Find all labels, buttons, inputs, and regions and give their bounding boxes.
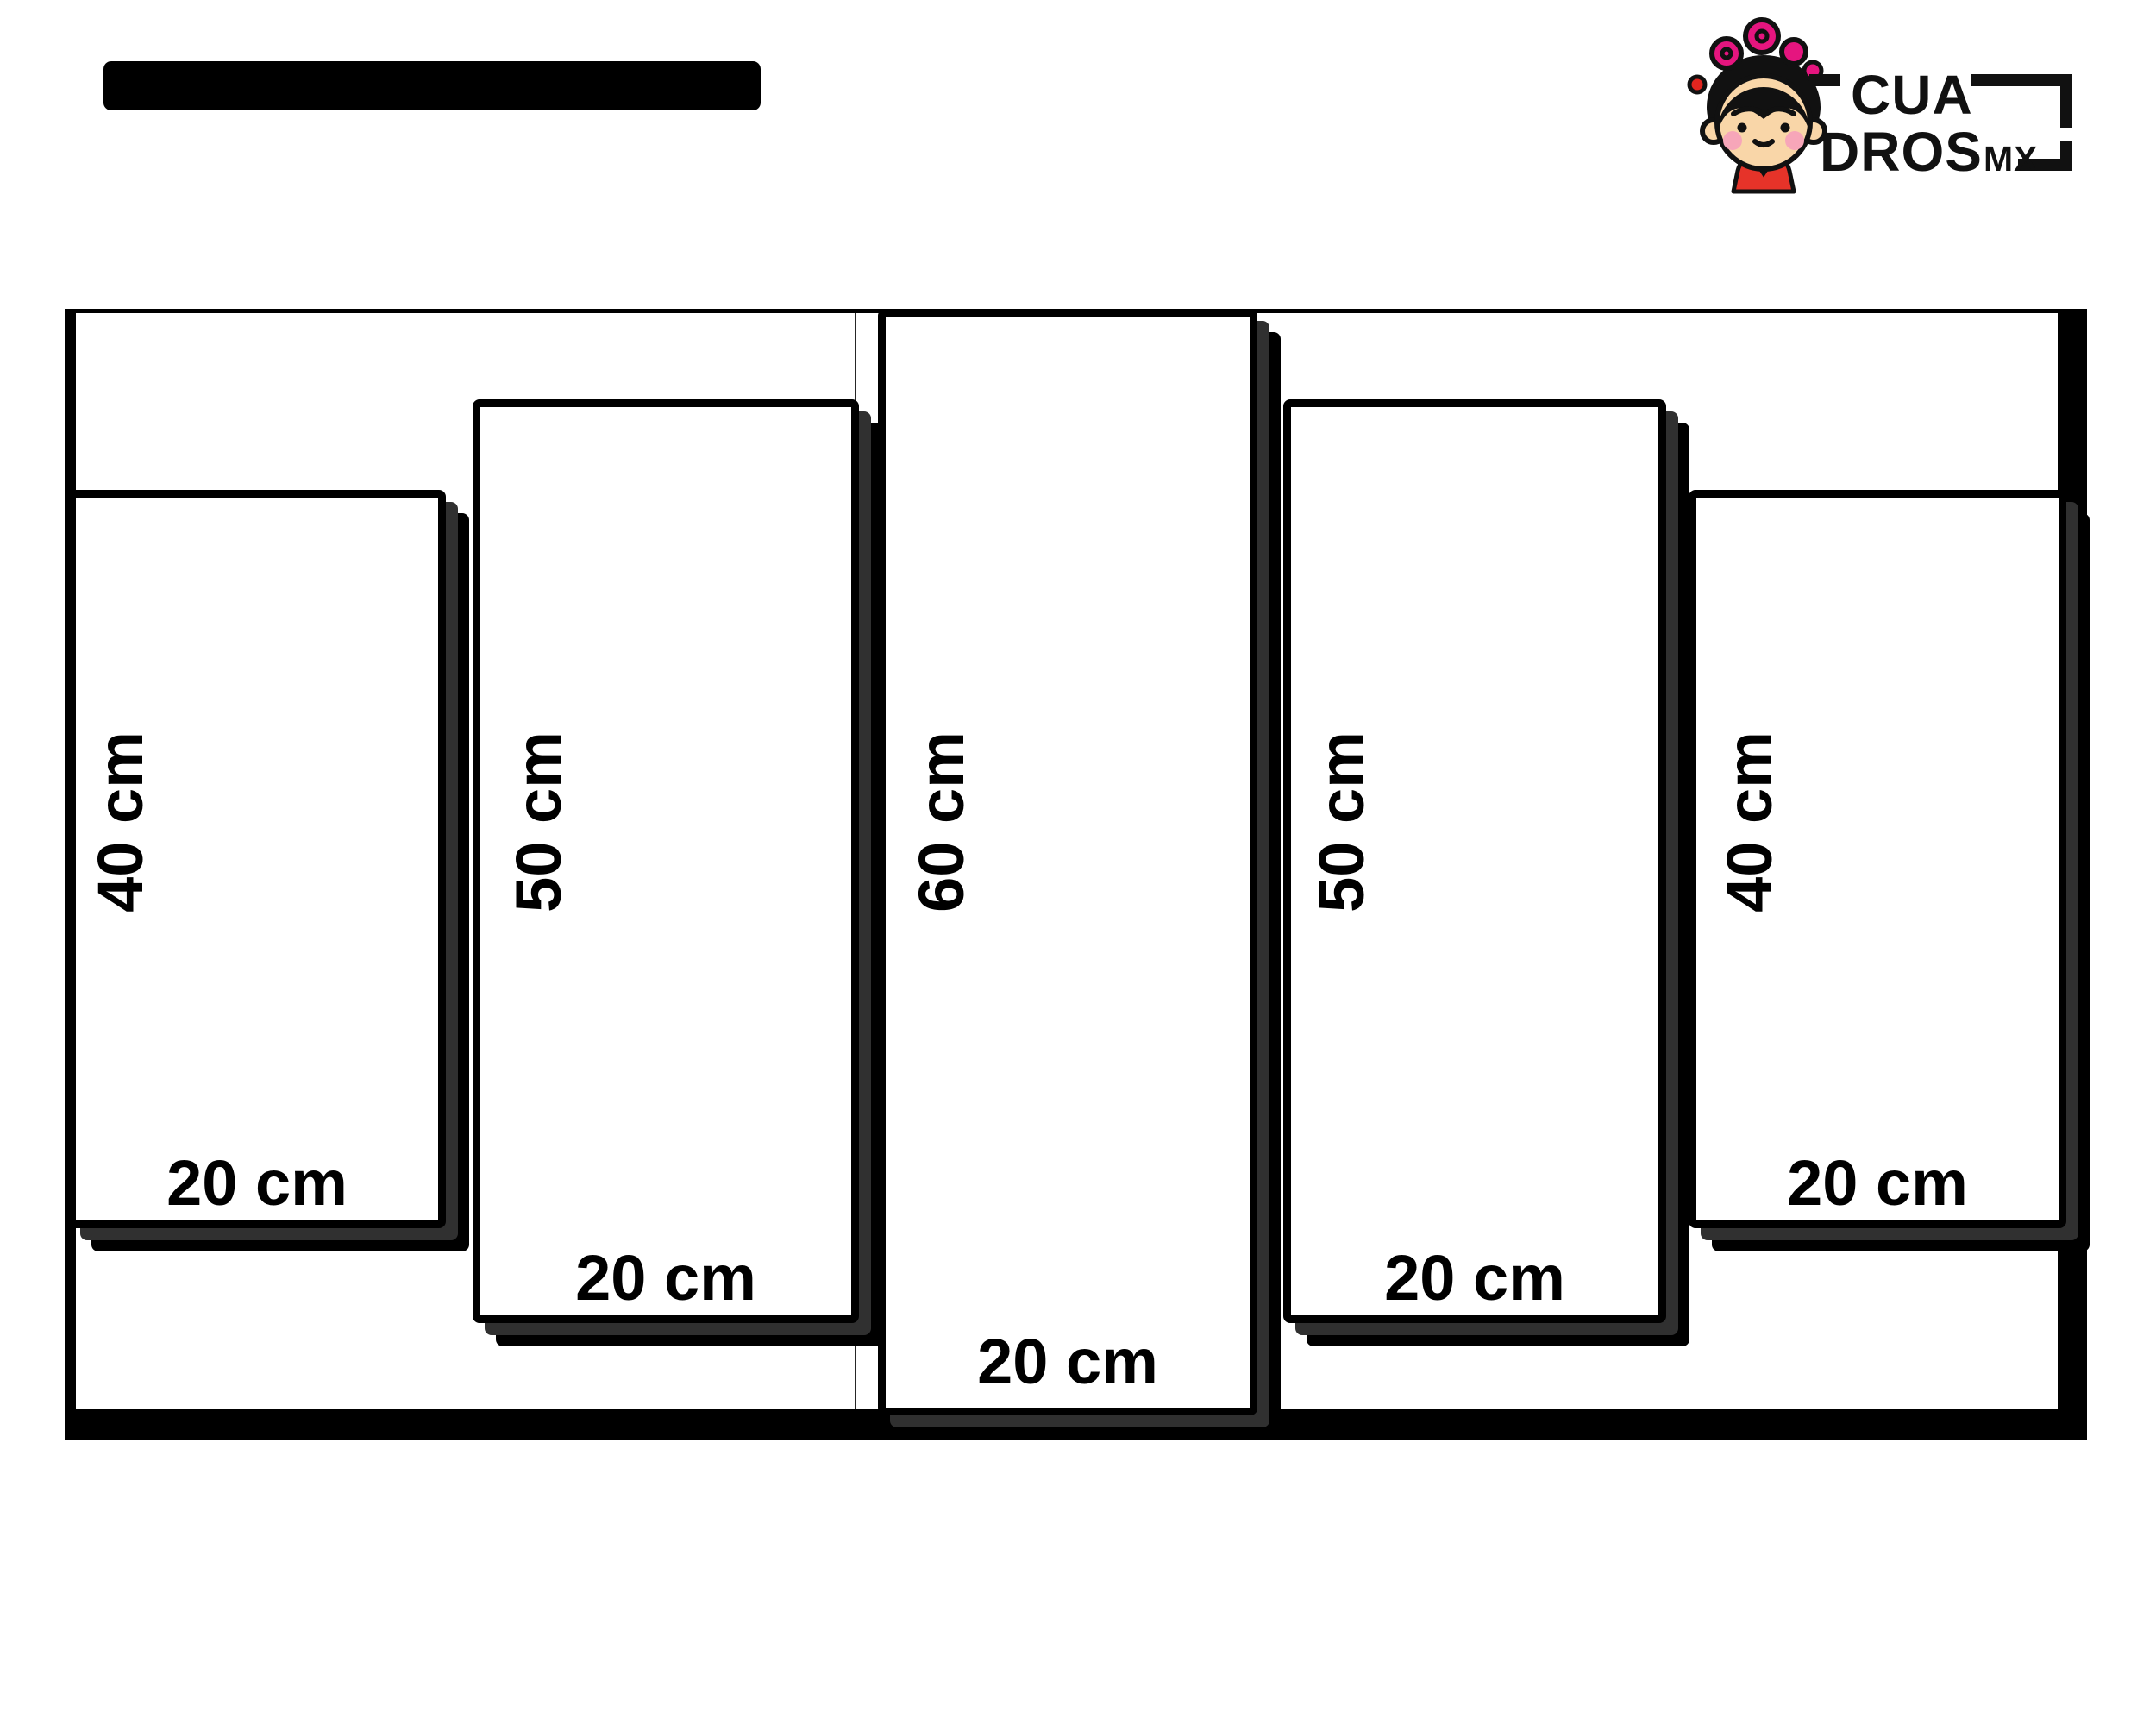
panel-1: 40 cm 20 cm [68,490,446,1228]
wordmark-dash [1809,74,1840,86]
brand-line1: CUA [1851,64,1973,126]
panel-5-width-label: 20 cm [1787,1151,1968,1215]
panel-1-width-label: 20 cm [166,1151,348,1215]
panel-4-width-label: 20 cm [1384,1246,1565,1310]
panel-3: 60 cm 20 cm [878,309,1257,1415]
page: CUA DROS MX 40 cm 20 cm 50 cm 20 cm 60 c… [0,0,2156,1725]
brand-logo: CUA DROS MX [1682,10,2078,196]
panel-3-width-label: 20 cm [977,1330,1158,1394]
panel-3-height-label: 60 cm [910,731,974,913]
panel-2-width-label: 20 cm [575,1246,756,1310]
panel-2: 50 cm 20 cm [473,399,859,1323]
mascot-icon [1689,20,1825,191]
panel-2-height-label: 50 cm [507,731,571,913]
frame-bracket-top-icon [1971,80,2066,128]
brand-suffix: MX [1984,139,2039,179]
panel-4: 50 cm 20 cm [1283,399,1666,1323]
brand-line2: DROS [1820,121,1983,183]
panel-1-height-label: 40 cm [89,731,153,913]
panel-5-height-label: 40 cm [1718,731,1782,913]
panel-5: 40 cm 20 cm [1689,490,2066,1228]
brand-wordmark: CUA DROS MX [1809,64,2066,183]
panel-4-height-label: 50 cm [1310,731,1374,913]
redacted-title-bar [103,61,761,110]
